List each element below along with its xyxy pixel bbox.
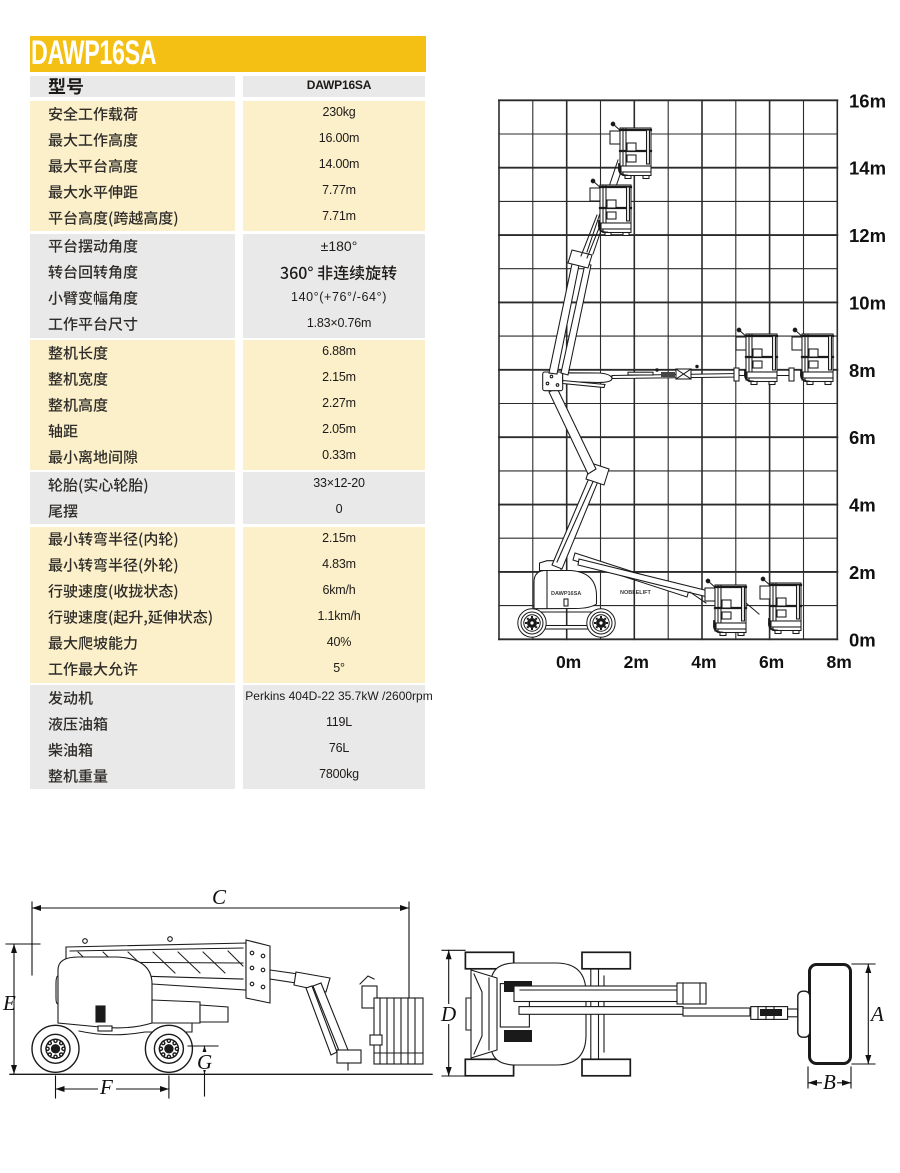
- svg-text:D: D: [440, 1002, 456, 1026]
- svg-text:16m: 16m: [849, 90, 886, 111]
- svg-text:4m: 4m: [691, 652, 716, 672]
- svg-text:8m: 8m: [827, 652, 852, 672]
- svg-text:14m: 14m: [849, 158, 886, 179]
- svg-text:0m: 0m: [556, 652, 581, 672]
- svg-text:10m: 10m: [849, 292, 886, 313]
- svg-text:A: A: [869, 1002, 884, 1026]
- svg-text:F: F: [99, 1075, 113, 1099]
- svg-text:6m: 6m: [849, 427, 876, 448]
- svg-text:8m: 8m: [849, 360, 876, 381]
- svg-text:G: G: [197, 1050, 212, 1074]
- svg-text:DAWP16SA: DAWP16SA: [551, 591, 581, 597]
- svg-text:12m: 12m: [849, 225, 886, 246]
- svg-text:0m: 0m: [849, 629, 876, 650]
- svg-text:C: C: [212, 885, 227, 909]
- svg-text:E: E: [2, 991, 16, 1015]
- svg-text:NOBLELIFT: NOBLELIFT: [620, 590, 651, 596]
- svg-text:2m: 2m: [849, 562, 876, 583]
- svg-text:6m: 6m: [759, 652, 784, 672]
- svg-text:B: B: [823, 1070, 836, 1094]
- svg-text:2m: 2m: [624, 652, 649, 672]
- svg-text:4m: 4m: [849, 495, 876, 516]
